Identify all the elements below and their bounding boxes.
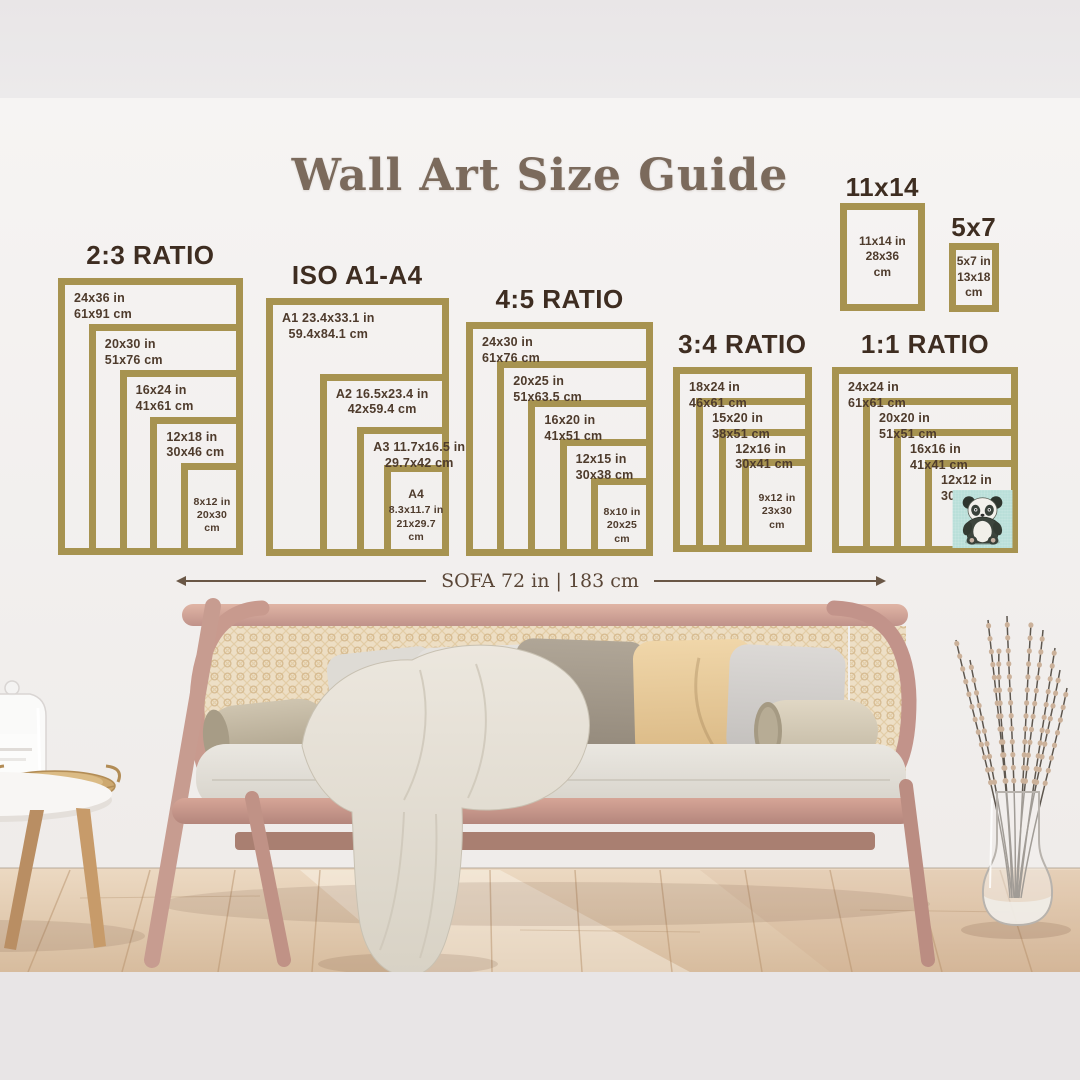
size-label: 11x14 in28x36 cm: [847, 210, 918, 304]
ratio-group-4-5: 4:5 RATIO 24x30 in61x76 cm20x25 in51x63.…: [466, 322, 653, 556]
group-heading-1-1: 1:1 RATIO: [861, 329, 989, 360]
size-label: 8x12 in20x30 cm: [178, 496, 246, 536]
size-label: 12x16 in30x41 cm: [735, 442, 793, 474]
ratio-group-iso-a1-a4: ISO A1-A4 A1 23.4x33.1 in59.4x84.1 cmA2 …: [266, 298, 449, 556]
size-label: 24x24 in61x61 cm: [848, 380, 906, 412]
sofa-width-measurement: SOFA 72 in | 183 cm: [186, 570, 876, 592]
frame-8x10-in: 8x10 in20x25 cm: [591, 478, 653, 556]
size-label: A48.3x11.7 in21x29.7 cm: [381, 487, 452, 544]
measure-label: SOFA 72 in | 183 cm: [426, 570, 654, 592]
ratio-group-2-3: 2:3 RATIO 24x36 in61x91 cm20x30 in51x76 …: [58, 278, 243, 555]
size-label: 5x7 in13x18 cm: [956, 250, 992, 305]
measure-arrow-right: [654, 580, 876, 582]
size-label: 16x24 in41x61 cm: [136, 383, 194, 415]
sofa-top-rail: [182, 604, 908, 626]
ratio-group-1-1: 1:1 RATIO: [832, 367, 1018, 553]
wall-art-size-guide-poster: Wall Art Size Guide 2:3 RATIO 24x36 in61…: [0, 0, 1080, 1080]
frame-8x12-in: 8x12 in20x30 cm: [181, 463, 243, 555]
group-heading-2-3: 2:3 RATIO: [86, 240, 214, 271]
frame-5x7: 5x7 5x7 in13x18 cm: [949, 243, 999, 312]
size-label: 8x10 in20x25 cm: [588, 506, 656, 546]
size-label: 12x15 in30x38 cm: [576, 452, 634, 484]
stretcher-bar: [235, 832, 875, 850]
ratio-group-3-4: 3:4 RATIO 18x24 in46x61 cm15x20 in38x51 …: [673, 367, 812, 552]
top-margin-band: [0, 0, 1080, 98]
size-label: 12x18 in30x46 cm: [166, 430, 224, 462]
seat-rail: [172, 798, 914, 824]
size-label: 15x20 in38x51 cm: [712, 411, 770, 443]
size-label: 24x30 in61x76 cm: [482, 335, 540, 367]
group-heading-iso: ISO A1-A4: [292, 260, 423, 291]
size-label: 24x36 in61x91 cm: [74, 291, 132, 323]
size-label: 20x30 in51x76 cm: [105, 337, 163, 369]
size-label: A1 23.4x33.1 in59.4x84.1 cm: [282, 311, 375, 343]
frame-11x14: 11x14 11x14 in28x36 cm: [840, 203, 925, 311]
frame-8.3x11.7-in: A48.3x11.7 in21x29.7 cm: [384, 465, 449, 556]
frame-9x12-in: 9x12 in23x30 cm: [742, 459, 811, 551]
size-label: 20x25 in51x63.5 cm: [513, 374, 582, 406]
measure-arrow-left: [186, 580, 426, 582]
panda-artwork: [952, 490, 1013, 548]
frame-heading-11x14: 11x14: [846, 172, 919, 203]
size-label: A2 16.5x23.4 in42x59.4 cm: [336, 387, 429, 419]
size-label: 9x12 in23x30 cm: [739, 492, 814, 532]
size-label: 18x24 in46x61 cm: [689, 380, 747, 412]
size-label: 16x16 in41x41 cm: [910, 442, 968, 474]
size-label: 20x20 in51x51 cm: [879, 411, 937, 443]
bottom-margin-band: [0, 972, 1080, 1080]
frame-heading-5x7: 5x7: [951, 212, 996, 243]
size-label: 16x20 in41x51 cm: [544, 413, 602, 445]
group-heading-4-5: 4:5 RATIO: [495, 284, 623, 315]
group-heading-3-4: 3:4 RATIO: [678, 329, 806, 360]
size-label: A3 11.7x16.5 in29.7x42 cm: [373, 440, 465, 472]
